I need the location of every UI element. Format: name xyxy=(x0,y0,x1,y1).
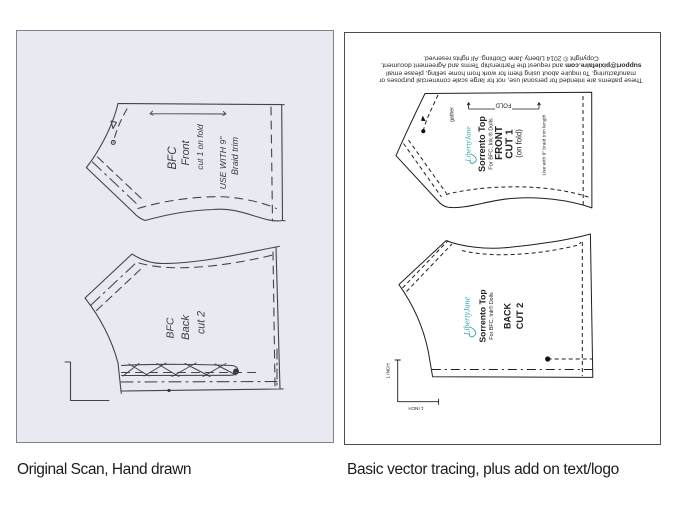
svg-text:1 INCH: 1 INCH xyxy=(386,363,391,378)
svg-text:Back: Back xyxy=(180,314,192,340)
svg-text:FRONT: FRONT xyxy=(494,126,505,160)
svg-text:Sorrento Top: Sorrento Top xyxy=(478,289,488,342)
svg-text:1 INCH: 1 INCH xyxy=(408,406,423,411)
svg-text:For BFC, Ink® Dolls: For BFC, Ink® Dolls xyxy=(488,292,495,340)
svg-text:(on fold): (on fold) xyxy=(515,129,524,158)
svg-text:Sorrento Top: Sorrento Top xyxy=(477,116,487,172)
svg-text:LibertyJane: LibertyJane xyxy=(464,126,473,163)
svg-text:USE WITH 9": USE WITH 9" xyxy=(218,136,228,190)
svg-text:FOLD: FOLD xyxy=(495,102,512,108)
svg-text:gather: gather xyxy=(450,107,456,122)
svg-text:cut 2: cut 2 xyxy=(196,311,208,334)
svg-text:Braid trim: Braid trim xyxy=(230,137,240,175)
svg-text:BFC: BFC xyxy=(165,317,177,338)
svg-text:CUT 2: CUT 2 xyxy=(515,303,525,330)
svg-text:Use with 9" braid trim length: Use with 9" braid trim length xyxy=(542,114,548,175)
svg-text:Front: Front xyxy=(180,140,192,166)
svg-text:BFC: BFC xyxy=(167,146,179,170)
svg-text:cut 1 on fold: cut 1 on fold xyxy=(195,124,205,170)
svg-text:LibertyJane: LibertyJane xyxy=(463,296,472,336)
svg-text:BACK: BACK xyxy=(503,303,513,329)
